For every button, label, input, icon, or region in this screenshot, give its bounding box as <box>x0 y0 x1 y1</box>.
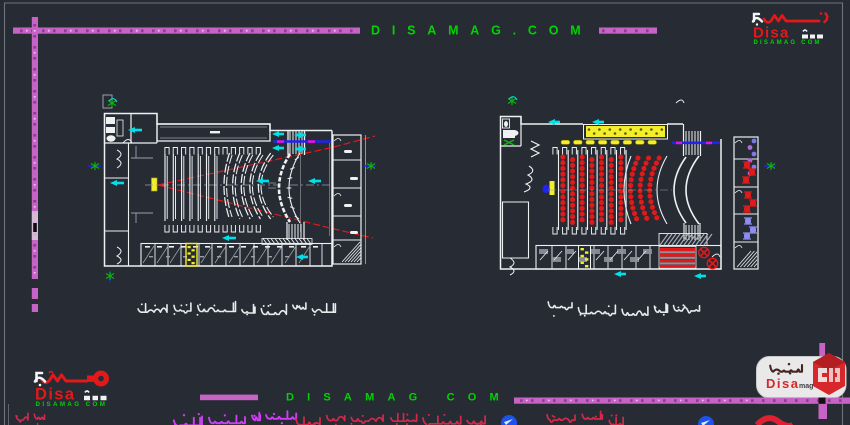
svg-text:DISAMAG COM: DISAMAG COM <box>286 392 512 404</box>
svg-text:DISAMAG COM: DISAMAG COM <box>754 40 822 46</box>
svg-text:DISAMAG COM: DISAMAG COM <box>36 401 108 408</box>
svg-text:Disa: Disa <box>766 376 799 391</box>
svg-text:DISAMAG.COM: DISAMAG.COM <box>371 24 592 38</box>
svg-text:mag: mag <box>799 383 813 390</box>
